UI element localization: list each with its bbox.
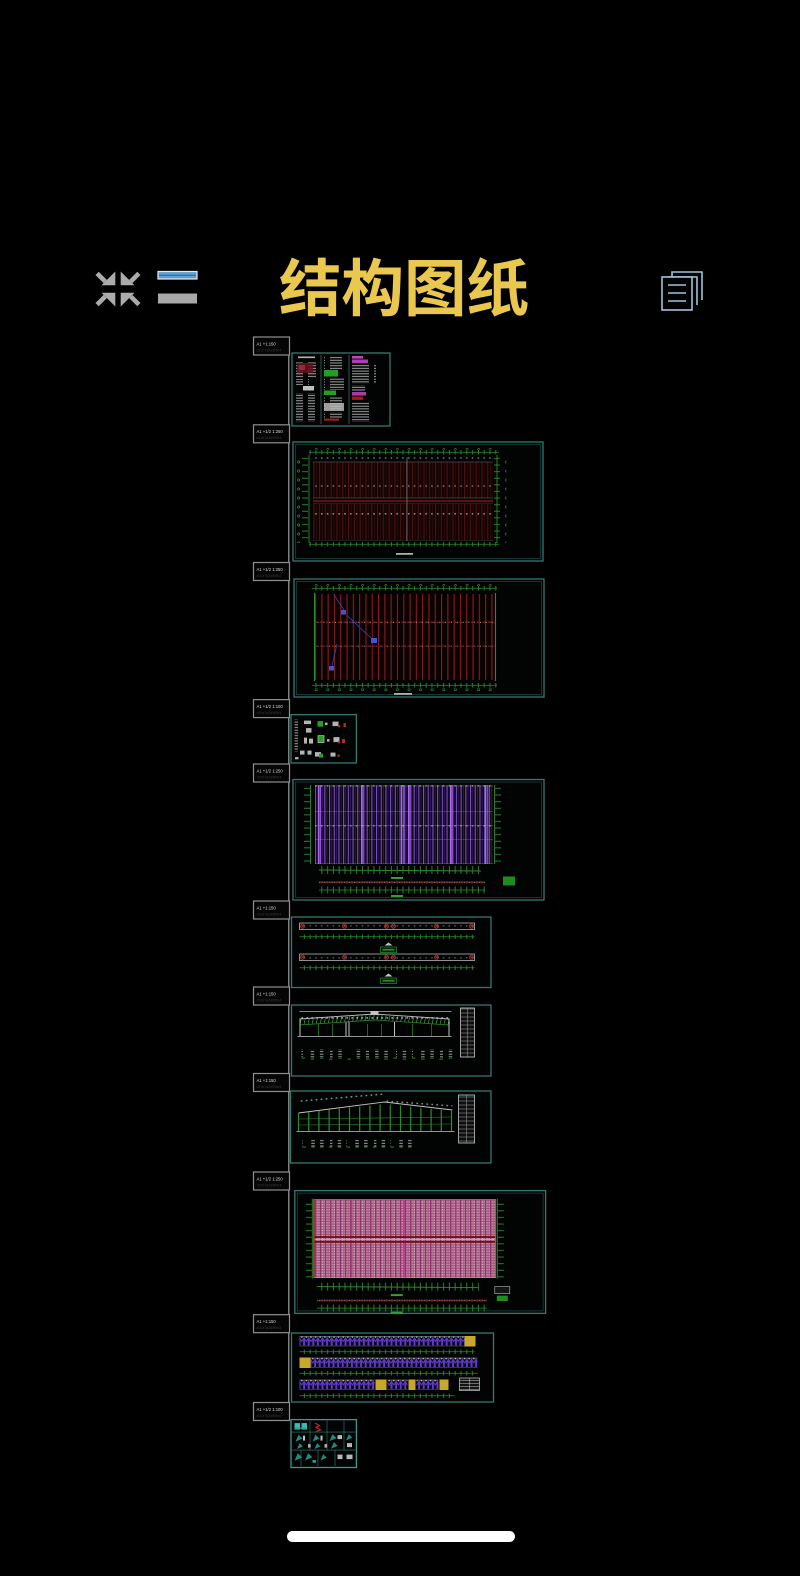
svg-text:c51b7a2d9f0b4: c51b7a2d9f0b4 xyxy=(257,775,282,779)
svg-text:A1 +1/2 1:250: A1 +1/2 1:250 xyxy=(257,1176,284,1181)
svg-text:A1 +1:150: A1 +1:150 xyxy=(257,991,277,996)
svg-text:c51b7a2d9f0b4: c51b7a2d9f0b4 xyxy=(257,1326,282,1330)
svg-text:c51b7a2d9f0b4: c51b7a2d9f0b4 xyxy=(257,1414,282,1418)
svg-text:A1 +1/2 1:250: A1 +1/2 1:250 xyxy=(257,768,284,773)
svg-text:A1 +1:150: A1 +1:150 xyxy=(257,1319,277,1324)
svg-text:A1 +1/2 1:250: A1 +1/2 1:250 xyxy=(257,567,284,572)
svg-text:c51b7a2d9f0b4: c51b7a2d9f0b4 xyxy=(257,1183,282,1187)
svg-text:c51b7a2d9f0b4: c51b7a2d9f0b4 xyxy=(257,711,282,715)
svg-text:c51b7a2d9f0b4: c51b7a2d9f0b4 xyxy=(257,1085,282,1089)
svg-text:A1 +1/2 1:100: A1 +1/2 1:100 xyxy=(257,704,284,709)
svg-text:A1 +1:150: A1 +1:150 xyxy=(257,905,277,910)
svg-text:A1 +1:150: A1 +1:150 xyxy=(257,341,277,346)
svg-text:c51b7a2d9f0b4: c51b7a2d9f0b4 xyxy=(257,348,282,352)
svg-text:A1 +1/2 1:250: A1 +1/2 1:250 xyxy=(257,429,284,434)
svg-text:c51b7a2d9f0b4: c51b7a2d9f0b4 xyxy=(257,912,282,916)
svg-text:c51b7a2d9f0b4: c51b7a2d9f0b4 xyxy=(257,574,282,578)
svg-text:A1 +1/2 1:100: A1 +1/2 1:100 xyxy=(257,1407,284,1412)
svg-text:c51b7a2d9f0b4: c51b7a2d9f0b4 xyxy=(257,436,282,440)
svg-text:c51b7a2d9f0b4: c51b7a2d9f0b4 xyxy=(257,998,282,1002)
svg-text:A1 +1:150: A1 +1:150 xyxy=(257,1078,277,1083)
